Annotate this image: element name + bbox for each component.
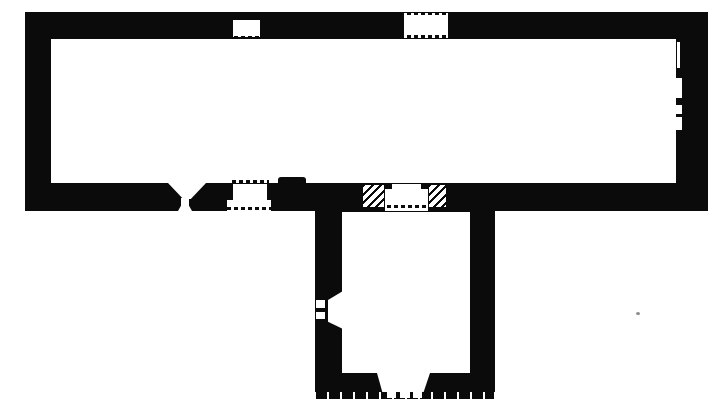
annex-portal-step-3	[413, 392, 422, 398]
annex-south-portal	[377, 373, 430, 392]
main-hall-floor	[51, 39, 676, 183]
north-window-1-dots-mid	[236, 16, 258, 19]
arch-respond-hatch-east	[428, 184, 447, 208]
annex-portal-step-1	[387, 392, 396, 398]
font-stem	[181, 198, 189, 207]
annex-floor	[342, 212, 470, 373]
arch-threshold-dots	[387, 205, 427, 208]
north-window-2-dots-outer	[400, 12, 452, 15]
north-window-1-dots-inner	[234, 36, 260, 39]
north-window-2-dots-inner	[400, 35, 452, 38]
south-door-dots-outer	[227, 207, 271, 210]
south-door-reveal	[233, 184, 267, 200]
north-window-1-dots-outer	[233, 12, 261, 15]
annex-west-window-block-2	[316, 312, 325, 319]
annex-portal-step-2	[400, 392, 410, 398]
east-wall-niche-1	[677, 42, 680, 68]
print-speck	[636, 312, 640, 315]
east-wall-niche-3	[676, 105, 682, 114]
north-window-1-opening	[233, 20, 260, 37]
east-wall-niche-4	[676, 117, 682, 130]
arch-respond-hatch-west	[362, 184, 385, 208]
floor-plan-canvas	[0, 0, 726, 416]
south-door-dots-inner	[232, 180, 269, 183]
annex-west-window-block-1	[316, 300, 325, 308]
east-wall-niche-2	[676, 78, 682, 98]
south-wall-pier	[278, 177, 306, 184]
